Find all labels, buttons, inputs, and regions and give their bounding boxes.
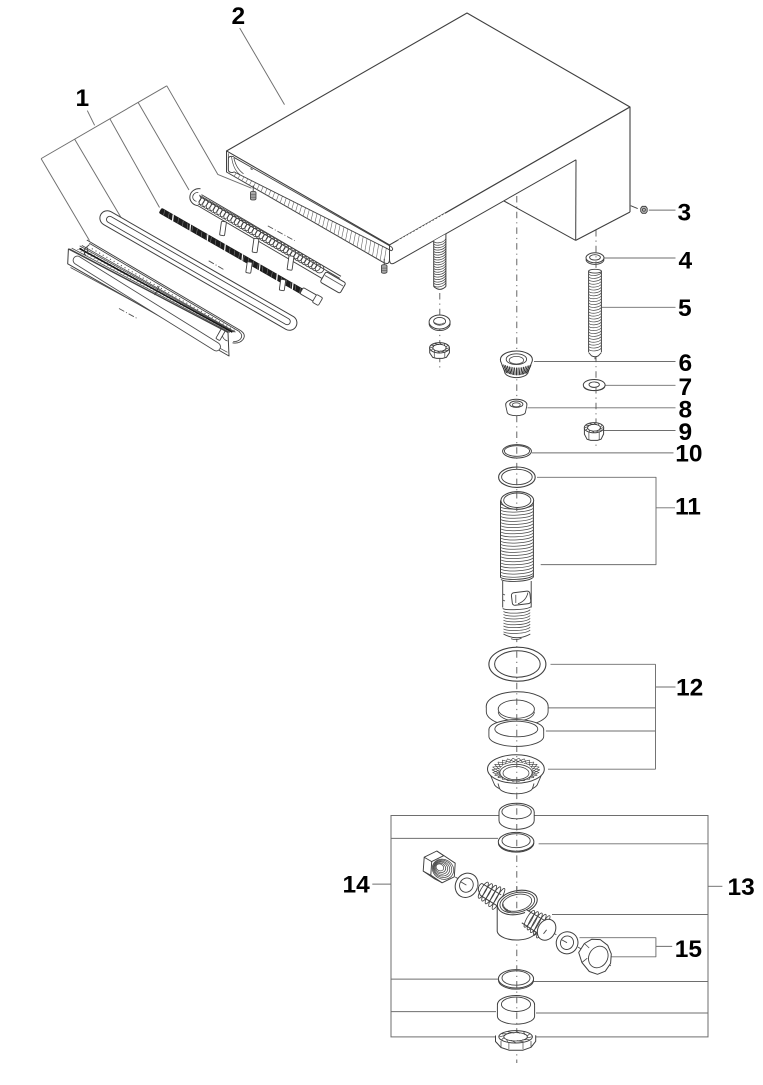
svg-text:13: 13 xyxy=(728,874,755,901)
svg-text:5: 5 xyxy=(678,295,692,322)
svg-text:1: 1 xyxy=(76,85,90,112)
svg-text:15: 15 xyxy=(675,936,702,963)
svg-text:3: 3 xyxy=(678,200,692,227)
svg-text:14: 14 xyxy=(343,871,371,898)
svg-text:12: 12 xyxy=(676,675,703,702)
svg-text:11: 11 xyxy=(675,494,701,521)
svg-text:4: 4 xyxy=(679,248,693,275)
svg-text:2: 2 xyxy=(232,3,246,30)
svg-text:10: 10 xyxy=(675,440,702,467)
